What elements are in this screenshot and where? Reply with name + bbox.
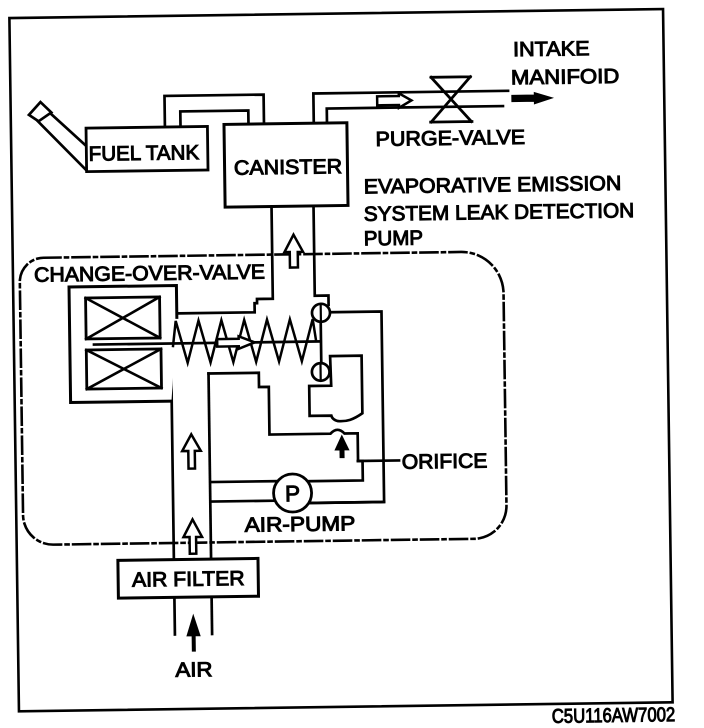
svg-text:EVAPORATIVE EMISSION: EVAPORATIVE EMISSION <box>364 172 622 199</box>
svg-text:PUMP: PUMP <box>364 227 424 251</box>
svg-text:FUEL TANK: FUEL TANK <box>89 141 200 166</box>
svg-text:CANISTER: CANISTER <box>234 155 343 179</box>
svg-text:AIR-PUMP: AIR-PUMP <box>244 512 355 537</box>
svg-text:AIR: AIR <box>175 658 212 682</box>
svg-text:ORIFICE: ORIFICE <box>402 450 488 474</box>
svg-text:CHANGE-OVER-VALVE: CHANGE-OVER-VALVE <box>34 261 265 287</box>
svg-text:P: P <box>285 481 300 506</box>
svg-text:C5U116AW7002: C5U116AW7002 <box>552 704 676 728</box>
svg-text:AIR FILTER: AIR FILTER <box>132 567 245 592</box>
svg-text:INTAKE: INTAKE <box>513 37 590 61</box>
svg-text:MANIFOID: MANIFOID <box>511 65 620 89</box>
svg-text:PURGE-VALVE: PURGE-VALVE <box>375 126 525 151</box>
svg-text:SYSTEM LEAK DETECTION: SYSTEM LEAK DETECTION <box>364 199 635 226</box>
